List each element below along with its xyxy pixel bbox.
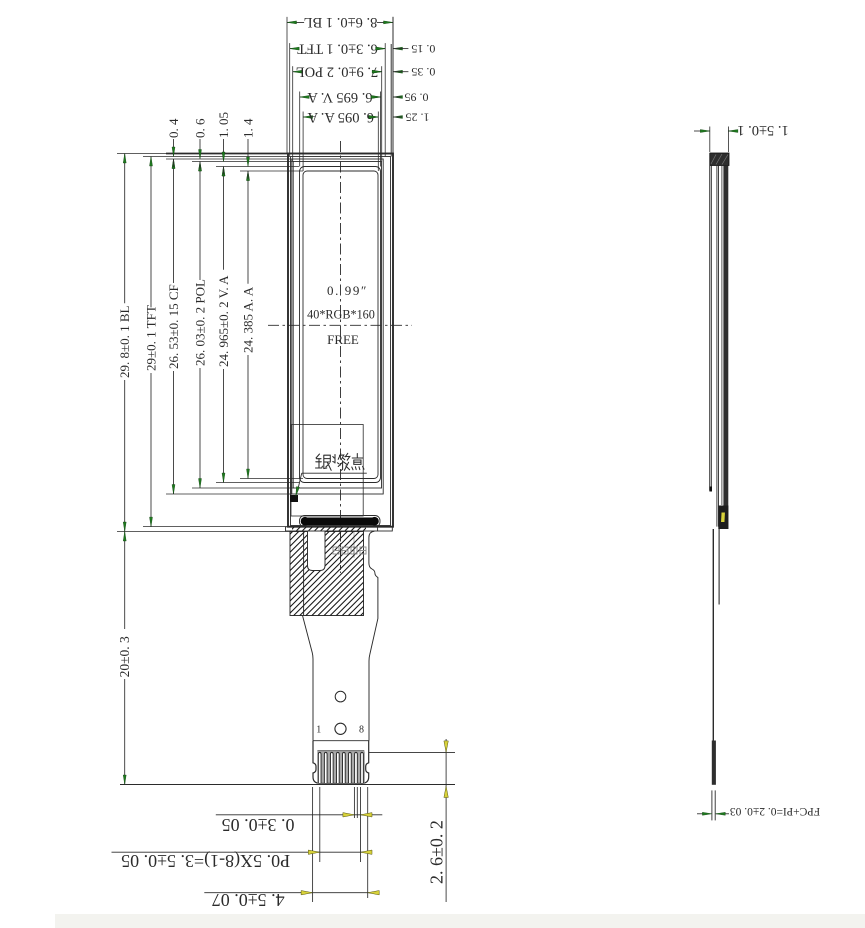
svg-text:6. 095 A. A: 6. 095 A. A xyxy=(307,109,374,125)
svg-text:1. 4: 1. 4 xyxy=(240,118,255,138)
svg-text:26. 53±0. 15 CF: 26. 53±0. 15 CF xyxy=(166,284,181,369)
svg-text:4. 5±0. 07: 4. 5±0. 07 xyxy=(212,890,285,910)
svg-text:8. 6±0. 1 BL: 8. 6±0. 1 BL xyxy=(304,14,378,30)
svg-text:29. 8±0. 1 BL: 29. 8±0. 1 BL xyxy=(117,305,132,378)
svg-text:7. 9±0. 2 POL: 7. 9±0. 2 POL xyxy=(296,63,378,79)
svg-text:2. 6±0. 2: 2. 6±0. 2 xyxy=(427,820,447,884)
svg-text:6. 3±0. 1 TFT: 6. 3±0. 1 TFT xyxy=(297,40,378,56)
svg-text:0. 35: 0. 35 xyxy=(411,65,435,79)
svg-text:40*RGB*160: 40*RGB*160 xyxy=(307,308,375,322)
svg-text:0. 99″: 0. 99″ xyxy=(327,283,368,298)
svg-text:0. 4: 0. 4 xyxy=(166,118,181,138)
svg-text:0. 95: 0. 95 xyxy=(405,91,429,105)
svg-text:20±0. 3: 20±0. 3 xyxy=(117,636,132,677)
svg-text:0. 6: 0. 6 xyxy=(192,118,207,138)
svg-text:24. 965±0. 2 V. A: 24. 965±0. 2 V. A xyxy=(216,275,231,367)
svg-text:6. 695 V. A: 6. 695 V. A xyxy=(307,89,373,105)
svg-text:29±0. 1 TFT: 29±0. 1 TFT xyxy=(144,305,159,371)
svg-text:P0. 5X(8-1)=3. 5±0. 05: P0. 5X(8-1)=3. 5±0. 05 xyxy=(121,850,290,871)
svg-text:1. 5±0. 1: 1. 5±0. 1 xyxy=(737,122,788,138)
svg-text:0. 3±0. 05: 0. 3±0. 05 xyxy=(222,815,295,835)
svg-text:FREE: FREE xyxy=(327,332,359,347)
svg-text:24. 385 A. A: 24. 385 A. A xyxy=(241,286,256,353)
svg-text:26. 03±0. 2 POL: 26. 03±0. 2 POL xyxy=(193,279,208,366)
svg-text:1: 1 xyxy=(316,725,321,736)
svg-text:8: 8 xyxy=(359,725,364,736)
svg-text:1. 05: 1. 05 xyxy=(216,112,231,138)
svg-text:1. 25: 1. 25 xyxy=(406,111,430,125)
svg-text:FPC+PI=0. 2±0. 03: FPC+PI=0. 2±0. 03 xyxy=(730,805,820,817)
svg-text:0. 15: 0. 15 xyxy=(411,42,435,56)
